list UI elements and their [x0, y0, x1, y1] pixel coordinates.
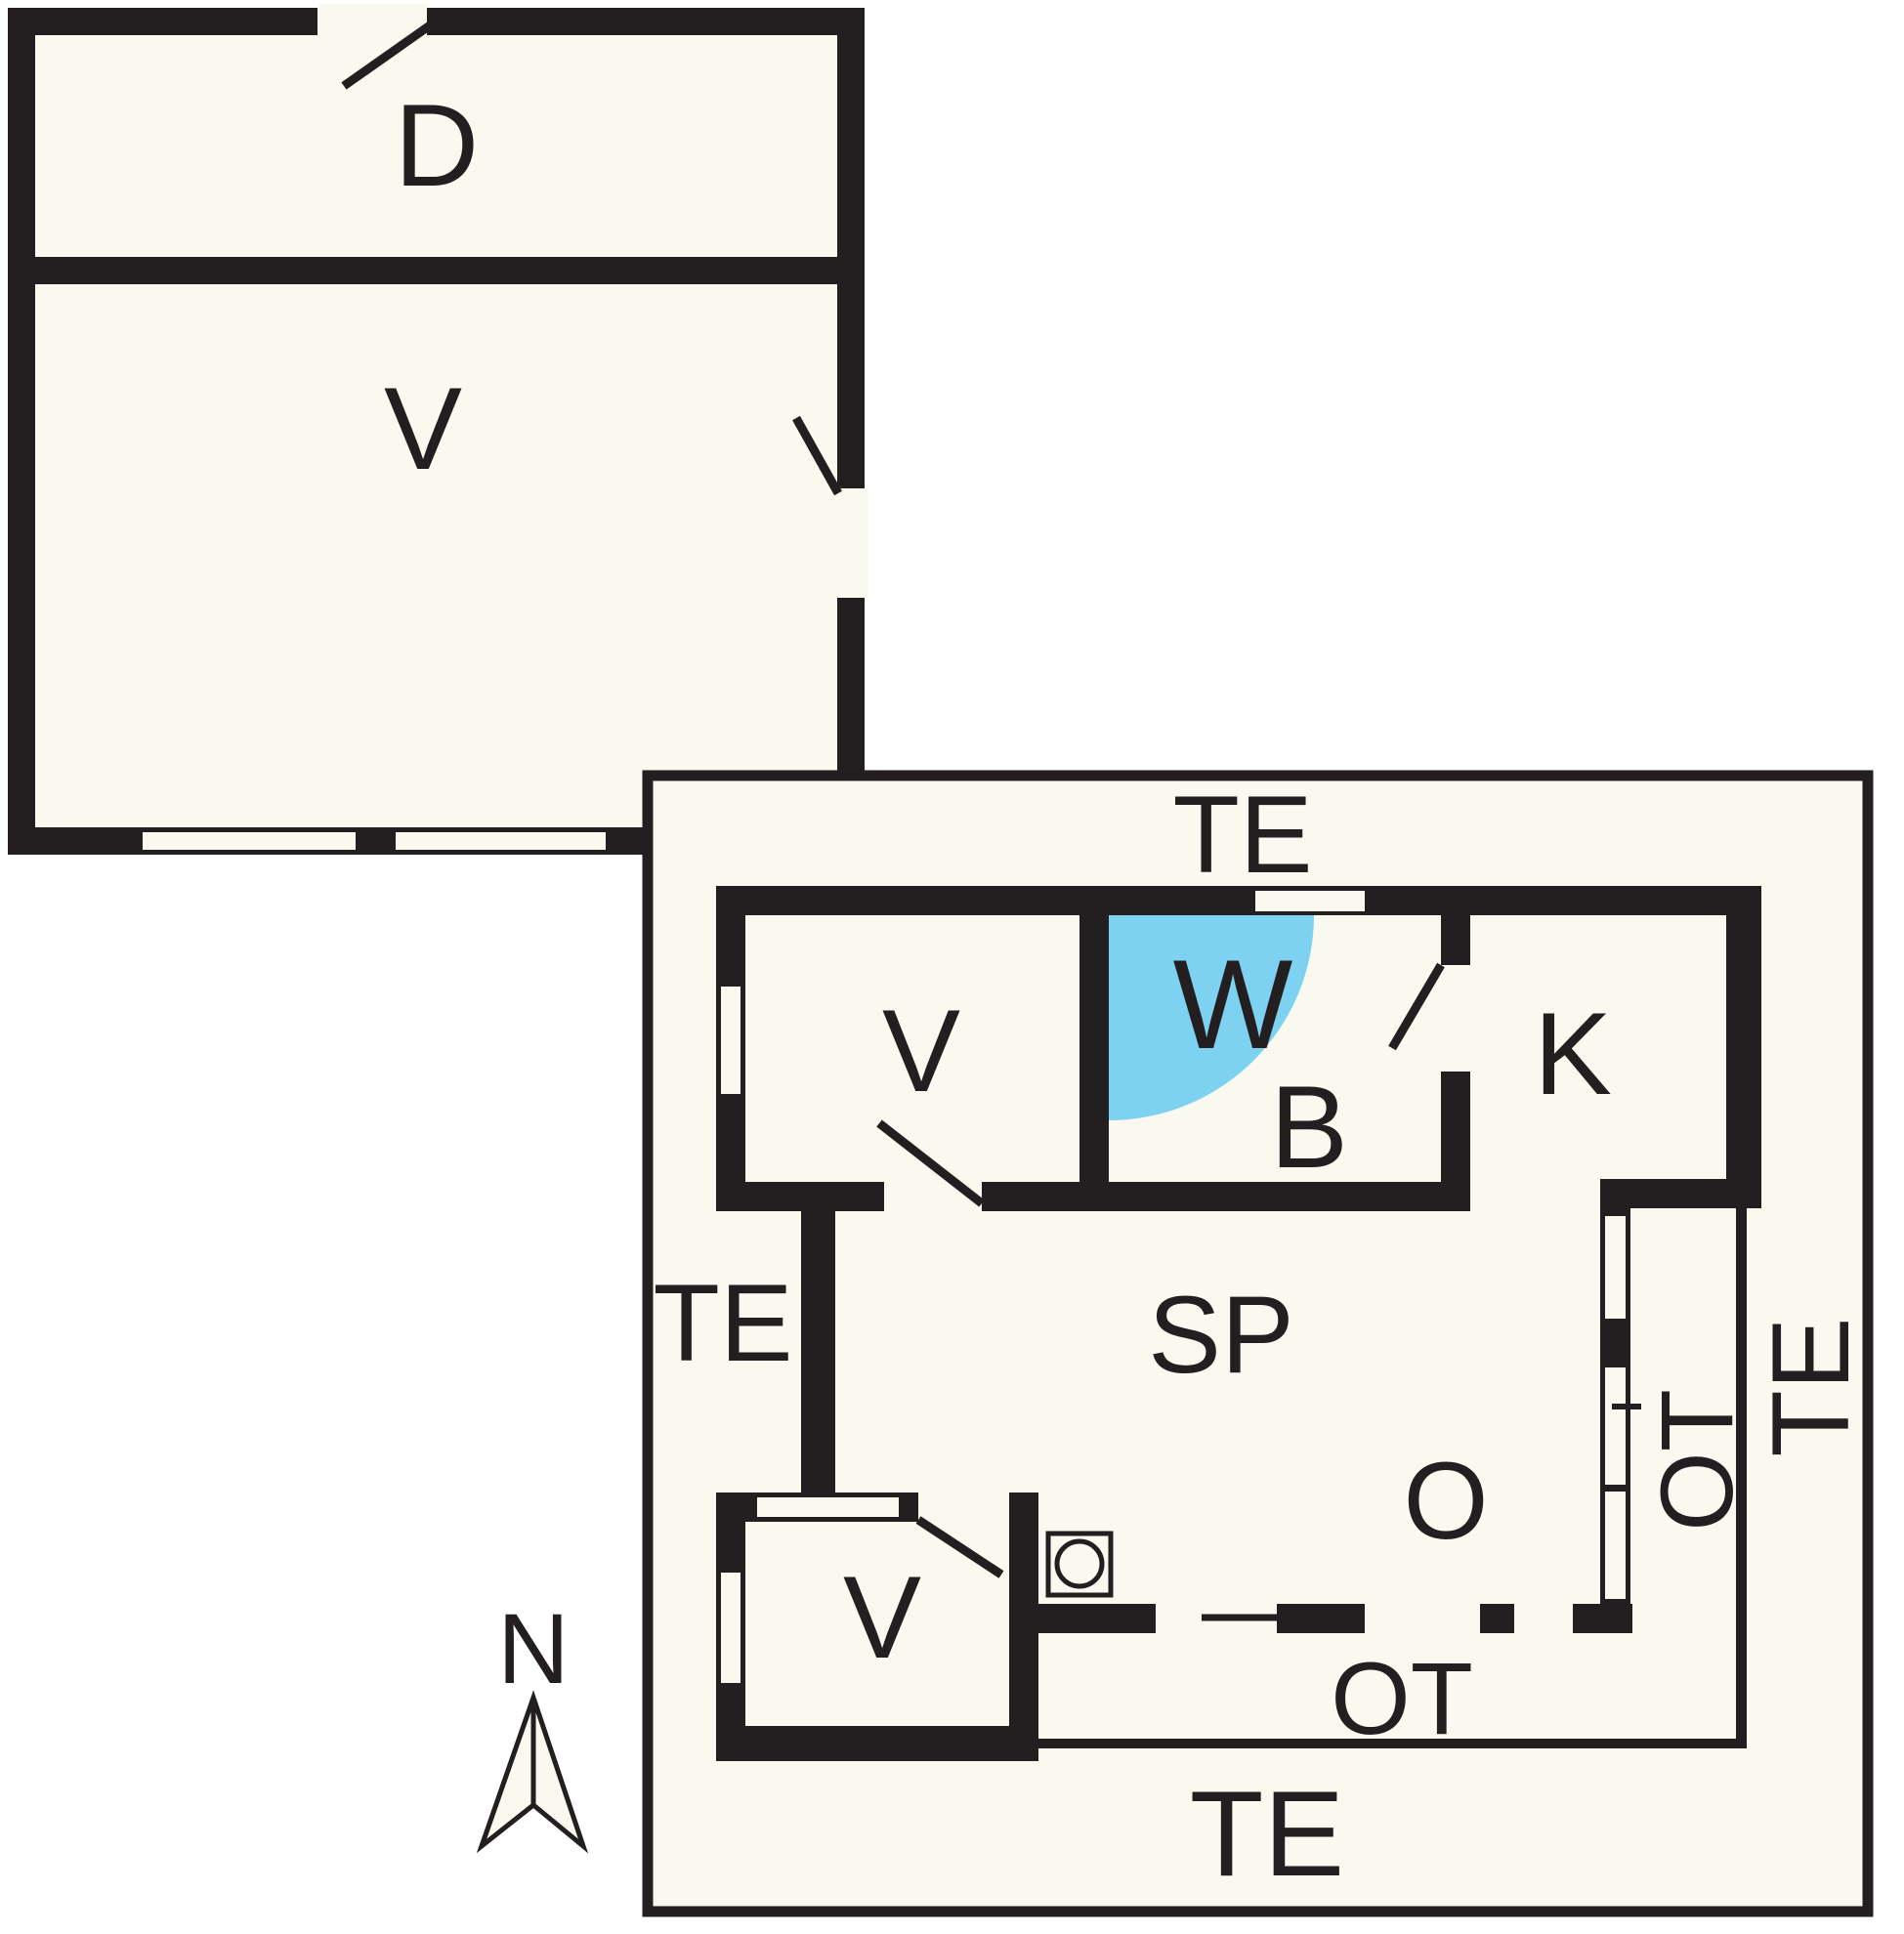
room-label-o: O — [1403, 1440, 1488, 1562]
window-opening — [1365, 1609, 1480, 1628]
room-label-d: D — [395, 80, 480, 211]
room-label-k: K — [1534, 988, 1612, 1119]
wall-segment — [1009, 1493, 1038, 1761]
area-label-te-bottom: TE — [1190, 1767, 1344, 1902]
area-label-te-top: TE — [1172, 774, 1312, 896]
room-label-w: W — [1173, 933, 1293, 1075]
door-opening — [317, 4, 427, 37]
window-opening — [1605, 1367, 1626, 1485]
window-opening — [143, 832, 356, 850]
door-opening — [835, 488, 868, 598]
window-opening — [721, 1573, 740, 1683]
window-opening — [396, 832, 606, 850]
area-label-te-left: TE — [653, 1262, 792, 1384]
area-label-ot-right: OT — [1640, 1389, 1755, 1532]
main-plan: TE V W B K SP O V TE TE OT OT TE — [648, 774, 1872, 1912]
window-opening — [1605, 1216, 1626, 1319]
window-opening — [1514, 1609, 1573, 1628]
wall-segment — [1726, 886, 1761, 1208]
window-opening — [1605, 1492, 1626, 1599]
wall-segment — [1573, 1604, 1632, 1633]
floor-plan-drawing: D V — [0, 0, 1904, 1934]
wall-segment — [1480, 1604, 1514, 1633]
area-label-ot-bottom: OT — [1331, 1642, 1473, 1756]
area-label-te-right: TE — [1750, 1317, 1872, 1456]
room-label-sp: SP — [1148, 1274, 1293, 1396]
door-opening — [1441, 965, 1470, 1072]
wall-segment — [716, 1726, 1038, 1761]
wall-segment — [1277, 1604, 1365, 1633]
window-opening — [757, 1497, 899, 1517]
wall-segment — [801, 1182, 835, 1522]
north-label: N — [497, 1593, 570, 1704]
window-opening — [721, 987, 740, 1094]
north-arrow-icon — [482, 1698, 583, 1846]
floor-plan-page: D V — [0, 0, 1904, 1934]
room-label-b: B — [1270, 1062, 1348, 1193]
room-label-v-lower: V — [843, 1552, 921, 1683]
wall-segment — [1079, 915, 1109, 1211]
room-label-v-upper: V — [882, 986, 960, 1116]
room-label-v: V — [384, 363, 462, 494]
upper-building: D V — [8, 4, 868, 855]
door-opening — [918, 1493, 1009, 1522]
north-indicator: N — [482, 1593, 583, 1846]
